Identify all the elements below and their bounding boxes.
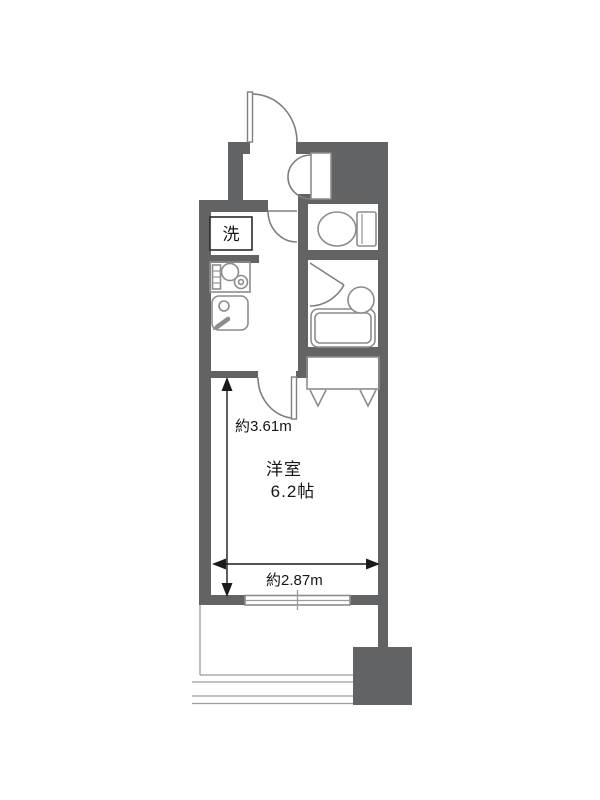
bathroom (310, 263, 375, 347)
washing-machine-space: 洗 (210, 217, 252, 250)
wash-basin-icon (348, 287, 374, 313)
entrance-door-icon (248, 92, 298, 142)
corner-block (353, 647, 412, 705)
wall-bath-bottom (308, 347, 378, 357)
floorplan-canvas: 洗 (0, 0, 600, 800)
room-size-label: 6.2帖 (271, 482, 316, 501)
balcony-railing (192, 605, 353, 704)
kitchen-sink-icon (212, 296, 248, 330)
wall-toilet-bath-divider (308, 250, 378, 260)
sliding-window-icon (245, 590, 350, 610)
horizontal-dimension-label: 約2.87m (266, 572, 323, 589)
wall-bottom-left (199, 595, 245, 605)
room-name-label: 洋室 (266, 460, 302, 479)
bathroom-door-icon (310, 263, 344, 306)
room-label: 洋室 6.2帖 (266, 460, 315, 501)
floorplan-drawing: 洗 (0, 0, 600, 800)
wall-left-upper (228, 142, 243, 206)
room-door-icon (258, 377, 297, 419)
laundry-label: 洗 (223, 225, 240, 244)
bathtub-icon (311, 309, 375, 347)
wall-right (378, 142, 388, 647)
toilet-icon (318, 212, 376, 246)
shoe-cabinet-icon (288, 153, 331, 199)
closet-hanger-icon (307, 357, 379, 406)
hall-door-icon (268, 211, 297, 242)
vertical-dimension-label: 約3.61m (235, 418, 292, 435)
wall-bottom-right (350, 595, 388, 605)
wall-room-top-left (199, 371, 258, 378)
dimension-horizontal: 約2.87m (212, 559, 380, 590)
wall-middle (298, 194, 308, 377)
kitchen-stove-icon (210, 262, 250, 292)
